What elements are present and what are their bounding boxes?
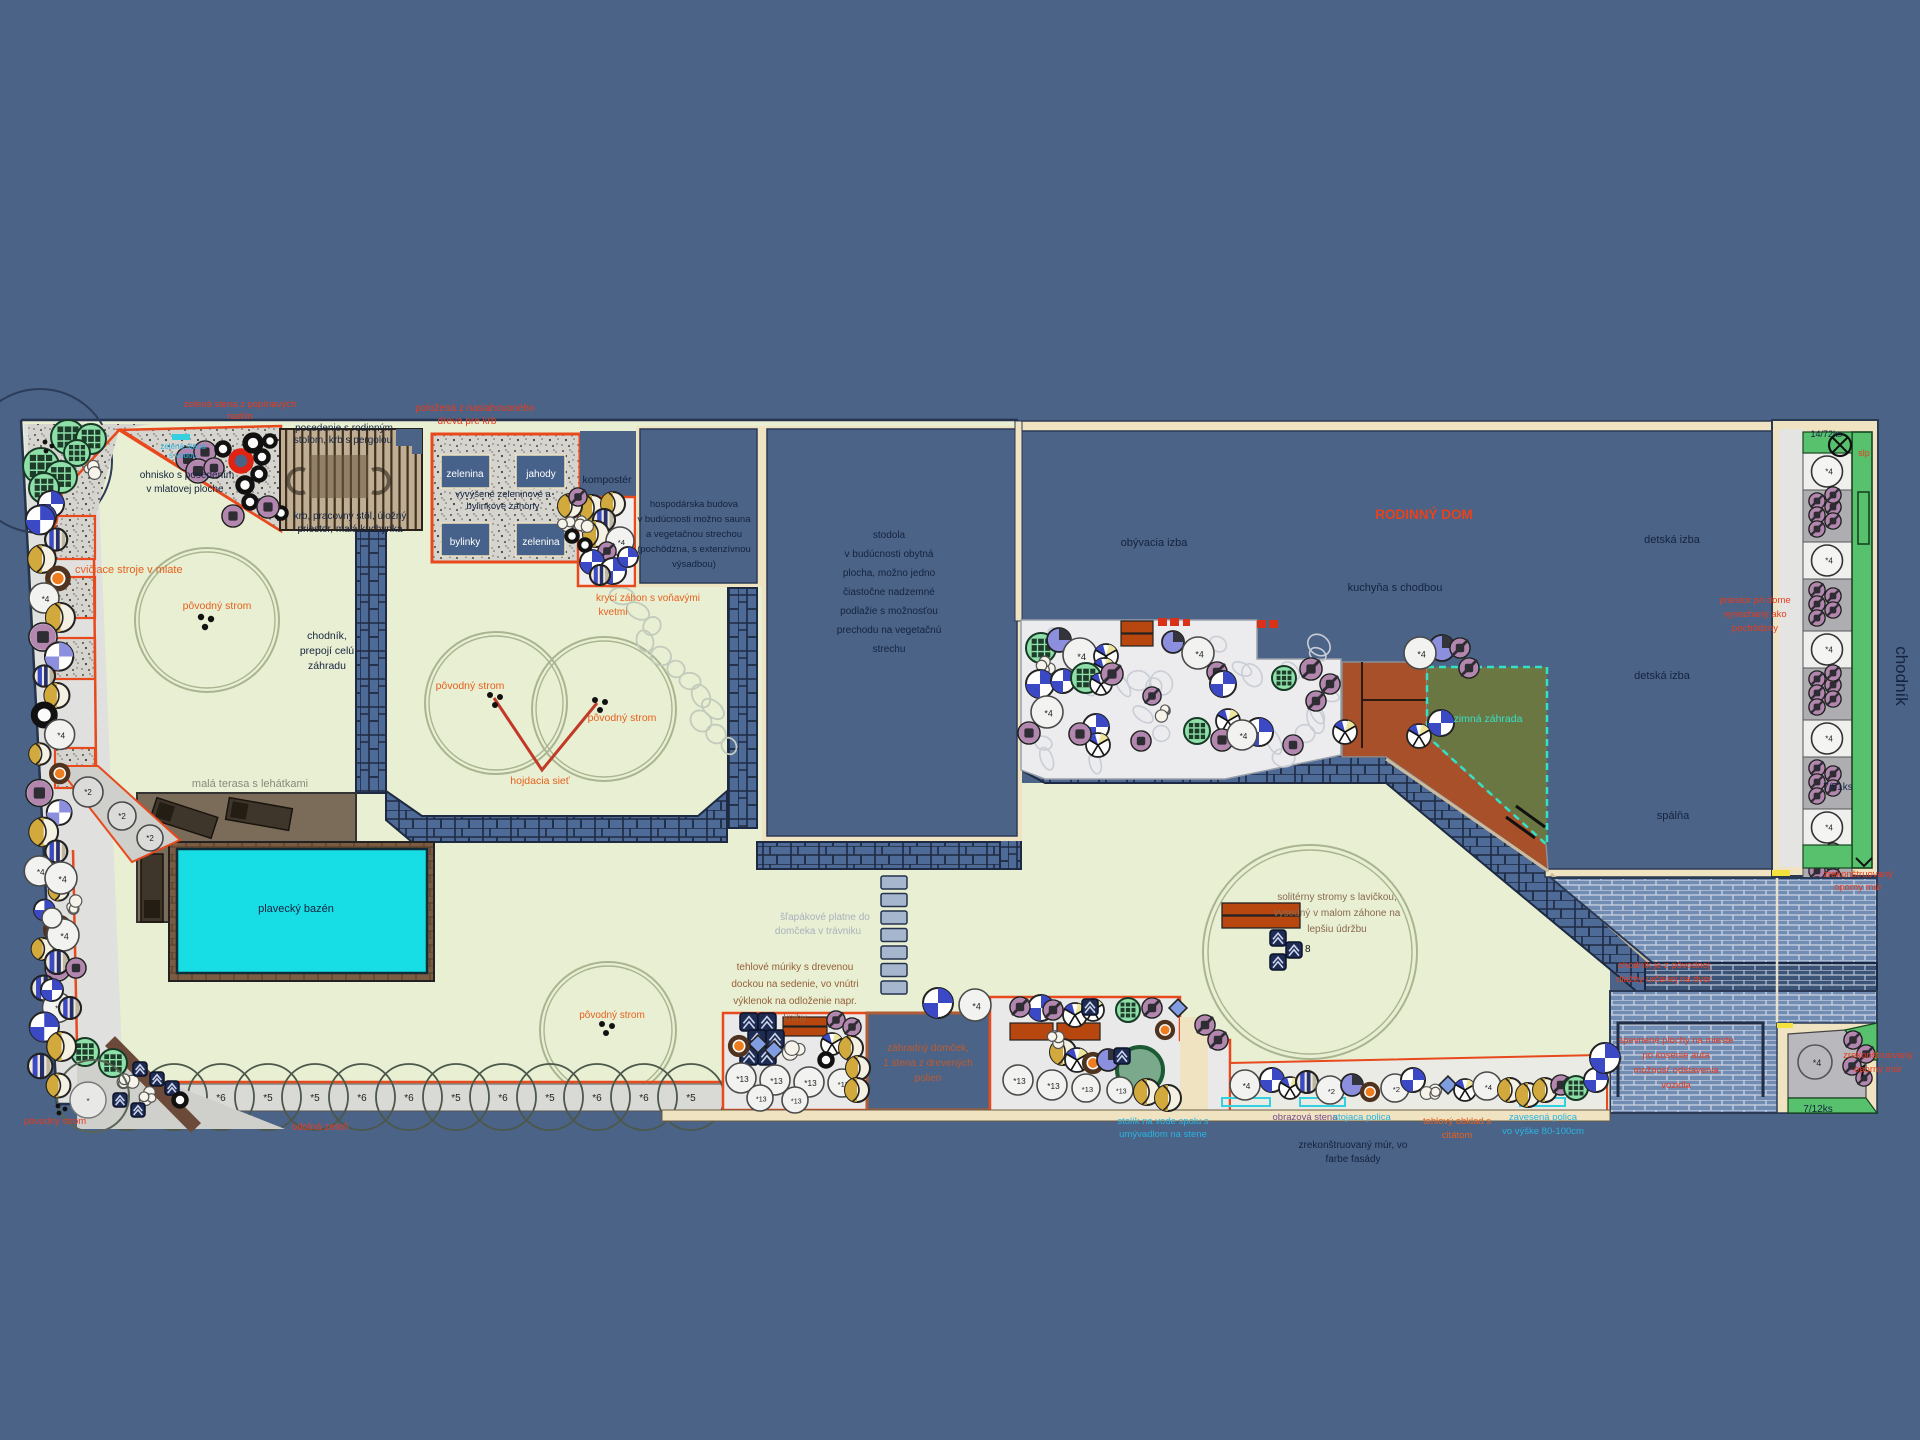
svg-text:*6: *6 [404,1093,414,1104]
svg-text:*2: *2 [118,812,126,821]
svg-text:obývacia izba: obývacia izba [1121,537,1189,549]
svg-text:bylinkové záhony: bylinkové záhony [467,501,540,512]
svg-text:dreva pre krb: dreva pre krb [438,416,497,427]
svg-text:pôvodný strom: pôvodný strom [24,1116,86,1127]
svg-text:lepšiu údržbu: lepšiu údržbu [1307,924,1366,935]
svg-text:podlažie s možnosťou: podlažie s možnosťou [840,606,938,617]
svg-text:záhradu: záhradu [308,660,346,672]
svg-text:*4: *4 [1813,1058,1822,1068]
svg-text:rastlín: rastlín [227,411,253,422]
svg-text:stojaca polica: stojaca polica [1333,1112,1391,1123]
svg-text:(pochôdzna, s extenzívnou: (pochôdzna, s extenzívnou [637,544,751,555]
svg-text:*2: *2 [84,788,92,797]
svg-text:*4: *4 [618,538,626,547]
svg-text:*13: *13 [1116,1088,1127,1096]
svg-text:oporný múr: oporný múr [1854,1064,1902,1075]
svg-text:a vegetačnou strechou: a vegetačnou strechou [646,529,742,540]
svg-text:knihy: knihy [783,1013,806,1024]
svg-text:*4: *4 [1825,468,1833,477]
svg-text:*13: *13 [791,1098,802,1106]
svg-text:*13: *13 [1013,1077,1026,1086]
svg-text:*4: *4 [1243,1082,1251,1091]
svg-text:šľapákové platne do: šľapákové platne do [780,912,870,923]
svg-text:*5: *5 [310,1093,320,1104]
svg-text:tehlové múriky s drevenou: tehlové múriky s drevenou [737,962,854,973]
svg-text:*4: *4 [1077,652,1086,662]
svg-text:priestor pri dome: priestor pri dome [1719,595,1790,606]
svg-text:*13: *13 [1047,1082,1060,1091]
svg-text:spevnené plochy na mieste: spevnené plochy na mieste [1618,1035,1733,1046]
svg-text:detská izba: detská izba [1644,534,1701,546]
svg-text:možnosť odstavenia: možnosť odstavenia [1633,1065,1719,1076]
svg-text:*13: *13 [1082,1085,1094,1094]
svg-text:*6: *6 [216,1093,226,1104]
svg-text:malá terasa s lehátkami: malá terasa s lehátkami [192,778,308,790]
svg-text:tehlový obklad s: tehlový obklad s [1423,1116,1491,1127]
svg-text:*5: *5 [686,1093,696,1104]
svg-text:citátom: citátom [1442,1130,1473,1141]
svg-text:domčeka v trávniku: domčeka v trávniku [775,926,861,937]
svg-text:7/12ks: 7/12ks [1803,1104,1832,1115]
svg-text:prechodu na vegetačnú: prechodu na vegetačnú [837,625,942,636]
svg-text:chodník je z pôvodnej: chodník je z pôvodnej [1618,960,1710,971]
svg-text:*4: *4 [1240,732,1248,741]
svg-text:zelenina: zelenina [446,469,484,480]
svg-text:*6: *6 [592,1093,602,1104]
svg-text:čiastočne nadzemné: čiastočne nadzemné [843,587,935,598]
svg-text:s vodou: s vodou [169,451,197,460]
svg-text:vozidla: vozidla [1661,1080,1691,1091]
svg-text:kompostér: kompostér [582,474,632,486]
svg-text:solitérny stromy s lavičkou,: solitérny stromy s lavičkou, [1277,892,1396,903]
svg-text:výklenok na odloženie napr.: výklenok na odloženie napr. [733,996,856,1007]
svg-text:vyvýšené zeleninové a: vyvýšené zeleninové a [455,489,551,500]
svg-text:výsadbou): výsadbou) [672,559,716,570]
svg-text:RODINNÝ DOM: RODINNÝ DOM [1375,507,1473,522]
svg-text:*: * [86,1097,89,1106]
svg-text:*6: *6 [357,1093,367,1104]
svg-text:po kosenie auta: po kosenie auta [1642,1050,1710,1061]
svg-text:zelená stena z popínavých: zelená stena z popínavých [184,399,297,410]
svg-text:*4: *4 [42,595,50,604]
svg-text:8: 8 [1305,944,1311,955]
svg-text:*5: *5 [263,1093,273,1104]
svg-text:ohnisko s posedením: ohnisko s posedením [140,470,235,481]
svg-text:*4: *4 [1825,557,1833,566]
svg-text:umývadlom na stene: umývadlom na stene [1119,1129,1207,1140]
svg-text:plavecký bazén: plavecký bazén [258,903,334,915]
svg-text:hojdacia sieť: hojdacia sieť [510,775,570,787]
svg-text:záhradný domček,: záhradný domček, [887,1043,969,1054]
svg-text:krb, pracovný stôl, úložný: krb, pracovný stôl, úložný [294,511,407,522]
svg-text:*13: *13 [770,1077,783,1086]
svg-text:zavesená polica: zavesená polica [1509,1112,1578,1123]
svg-text:vysedný v malom záhone na: vysedný v malom záhone na [1274,908,1401,919]
svg-text:vo výške 80-100cm: vo výške 80-100cm [1502,1126,1584,1137]
svg-text:*6: *6 [639,1093,649,1104]
svg-text:jahody: jahody [525,469,555,480]
svg-text:*2: *2 [1393,1085,1400,1094]
svg-text:spálňa: spálňa [1657,810,1690,822]
svg-text:prepojí celú: prepojí celú [300,645,354,657]
svg-text:krycí záhon s voňavými: krycí záhon s voňavými [596,593,700,604]
svg-text:chodník,: chodník, [307,630,347,642]
svg-text:v budúcnosti možno sauna: v budúcnosti možno sauna [637,514,751,525]
svg-text:chodník: chodník [1892,646,1911,706]
svg-text:*4: *4 [1825,646,1833,655]
svg-text:*13: *13 [804,1079,817,1088]
svg-text:v budúcnosti obytná: v budúcnosti obytná [845,549,934,560]
svg-text:14/72ks: 14/72ks [1810,429,1842,439]
svg-text:*4: *4 [60,931,68,941]
svg-text:priestor, malá kuchynka: priestor, malá kuchynka [297,524,402,535]
svg-text:zrekonštruovaný: zrekonštruovaný [1823,869,1893,880]
svg-text:*2: *2 [146,834,154,843]
svg-text:*4: *4 [1044,708,1052,718]
svg-text:oporný múr: oporný múr [1834,882,1882,893]
svg-text:vynechaný ako: vynechaný ako [1723,609,1786,620]
svg-text:pôvodný strom: pôvodný strom [588,712,657,724]
svg-text:*4: *4 [972,1001,980,1011]
svg-text:*4: *4 [1825,824,1833,833]
svg-text:zelenina: zelenina [522,537,560,548]
svg-text:7/51ks: 7/51ks [1823,782,1852,793]
svg-text:zimná záhrada: zimná záhrada [1454,713,1523,725]
svg-text:*5: *5 [451,1093,461,1104]
svg-text:*4: *4 [37,868,45,877]
svg-text:obrazová stena: obrazová stena [1273,1112,1339,1123]
svg-text:stodola: stodola [873,530,906,541]
svg-text:1 stena z drevených: 1 stena z drevených [883,1058,973,1069]
svg-text:plocha, možno jedno: plocha, možno jedno [843,568,936,579]
svg-text:*4: *4 [1195,649,1203,659]
svg-text:*13: *13 [736,1075,749,1084]
svg-text:pôvodný strom: pôvodný strom [183,600,252,612]
svg-text:*13: *13 [756,1096,767,1104]
svg-text:zrekonštruovaný múr, vo: zrekonštruovaný múr, vo [1299,1140,1408,1151]
svg-text:zelená stena: zelená stena [160,442,206,451]
svg-text:stolík na vode spolu s: stolík na vode spolu s [1117,1116,1209,1127]
svg-text:odolná zeleň: odolná zeleň [292,1122,349,1133]
svg-text:strechu: strechu [873,644,906,655]
svg-text:pôvodný strom: pôvodný strom [579,1010,645,1021]
svg-text:*2: *2 [1328,1087,1335,1096]
svg-text:cvičiace stroje v mlate: cvičiace stroje v mlate [75,564,183,576]
svg-text:*6: *6 [498,1093,508,1104]
svg-text:slp: slp [1858,448,1870,458]
svg-text:*4: *4 [1417,649,1425,659]
svg-text:položená z nasiahovaného: položená z nasiahovaného [416,403,535,414]
svg-text:kvetmi: kvetmi [599,607,628,618]
svg-text:zrekonštruovaný: zrekonštruovaný [1843,1050,1913,1061]
svg-text:farbe fasády: farbe fasády [1325,1154,1380,1165]
svg-text:dlažby určenej na dvor: dlažby určenej na dvor [1616,974,1712,985]
svg-text:posedenie s rodinným: posedenie s rodinným [295,423,393,434]
svg-text:pochôdzny: pochôdzny [1732,623,1778,634]
svg-text:*4: *4 [58,874,66,884]
svg-text:*4: *4 [57,732,65,741]
svg-text:*4: *4 [1485,1083,1493,1092]
svg-text:v mlatovej ploche: v mlatovej ploche [146,484,224,495]
svg-text:*4: *4 [1825,735,1833,744]
svg-text:kuchyňa s chodbou: kuchyňa s chodbou [1348,582,1443,594]
svg-text:*5: *5 [545,1093,555,1104]
svg-text:stolom, krb s pergolou: stolom, krb s pergolou [294,435,392,446]
svg-text:polien: polien [915,1073,942,1084]
svg-text:detská izba: detská izba [1634,670,1691,682]
svg-text:hospodárska budova: hospodárska budova [650,499,739,510]
svg-text:pôvodný strom: pôvodný strom [436,680,505,692]
svg-text:bylinky: bylinky [450,537,481,548]
svg-text:dockou na sedenie, vo vnútri: dockou na sedenie, vo vnútri [731,979,858,990]
